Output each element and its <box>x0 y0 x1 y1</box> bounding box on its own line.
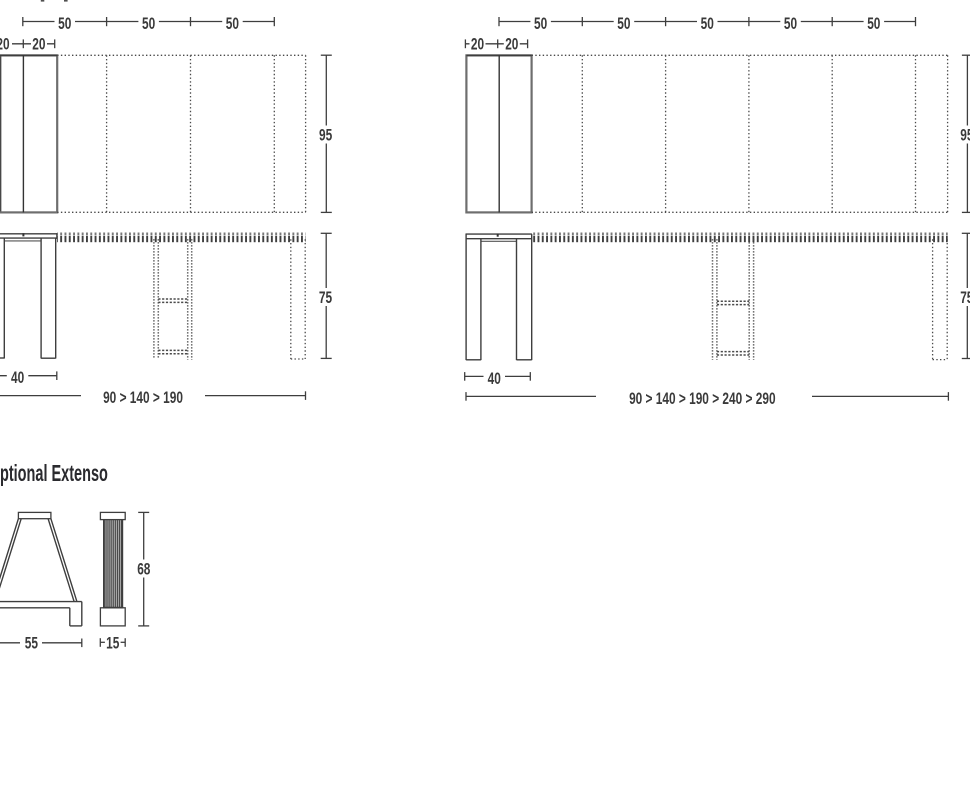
svg-text:50: 50 <box>701 15 714 33</box>
svg-text:75: 75 <box>319 289 332 307</box>
svg-text:90 > 140 > 190: 90 > 140 > 190 <box>103 389 183 407</box>
svg-text:20: 20 <box>32 36 45 54</box>
svg-text:50: 50 <box>226 15 239 33</box>
svg-text:95: 95 <box>319 127 332 145</box>
svg-text:90 > 140 > 190 > 240 > 290: 90 > 140 > 190 > 240 > 290 <box>629 390 775 408</box>
svg-text:Optional Extenso: Optional Extenso <box>0 460 108 486</box>
svg-text:15: 15 <box>106 635 119 653</box>
svg-text:20: 20 <box>471 36 484 54</box>
svg-text:50: 50 <box>58 15 71 33</box>
svg-text:40: 40 <box>488 370 501 388</box>
svg-text:75: 75 <box>960 289 970 307</box>
svg-text:20: 20 <box>505 36 518 54</box>
svg-text:50: 50 <box>534 15 547 33</box>
svg-text:50: 50 <box>867 15 880 33</box>
svg-text:95: 95 <box>960 127 970 145</box>
svg-text:68: 68 <box>137 561 150 579</box>
svg-text:20: 20 <box>0 36 10 54</box>
svg-text:50: 50 <box>617 15 630 33</box>
svg-text:55: 55 <box>25 635 38 653</box>
svg-text:50: 50 <box>784 15 797 33</box>
svg-text:50: 50 <box>142 15 155 33</box>
svg-text:40: 40 <box>11 369 24 387</box>
